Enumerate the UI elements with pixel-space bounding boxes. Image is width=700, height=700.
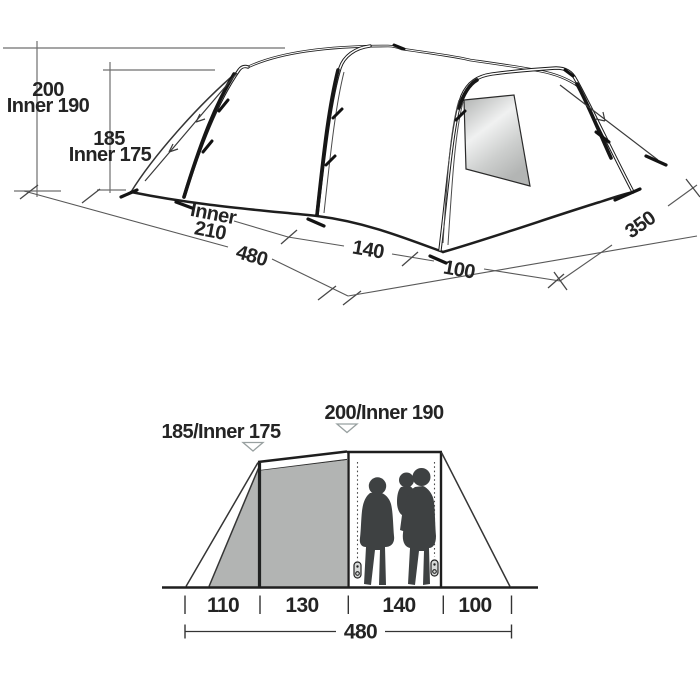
label-350: 350 (621, 207, 660, 243)
section-dimensions: 110 130 140 100 (185, 594, 512, 617)
label-100-3d: 100 (442, 257, 477, 284)
front-elevation-view: 185/Inner 175 200/Inner 190 (162, 402, 538, 644)
tent-window (464, 95, 530, 186)
label-inner-175: Inner 175 (69, 144, 152, 166)
section-label-100: 100 (458, 594, 491, 617)
person-silhouette-adult (360, 477, 394, 585)
tent-poles (184, 46, 633, 250)
section-label-140: 140 (382, 594, 415, 617)
height-marker-triangle-icon (243, 443, 263, 452)
label-140-3d: 140 (351, 237, 386, 264)
middle-arch-pole (317, 46, 370, 215)
label-inner-190: Inner 190 (7, 95, 90, 117)
person-silhouette-adult-with-child (397, 468, 436, 585)
section-label-130: 130 (285, 594, 318, 617)
label-inner-210: 210 (193, 217, 229, 245)
tent-3d-view: 200 Inner 190 185 Inner 175 (3, 41, 700, 305)
tent-dimensions-diagram: 200 Inner 190 185 Inner 175 (0, 0, 700, 700)
label-480-elevation: 480 (344, 621, 377, 644)
label-200-inner-190: 200/Inner 190 (325, 402, 444, 424)
section-label-110: 110 (207, 594, 239, 617)
inner-tent-mid-section (261, 460, 347, 587)
zipper-pull-icon (354, 562, 361, 578)
label-185-inner-175: 185/Inner 175 (162, 421, 281, 443)
label-480-3d: 480 (233, 241, 270, 271)
ground-edge-front (443, 192, 633, 252)
height-marker-triangle-icon (337, 424, 357, 433)
rear-slope-edge (131, 72, 237, 192)
total-width-line: 480 (185, 621, 512, 644)
tent-body-elevation (162, 452, 538, 588)
zipper-pull-icon (431, 560, 438, 576)
rear-arch-pole (184, 66, 248, 197)
